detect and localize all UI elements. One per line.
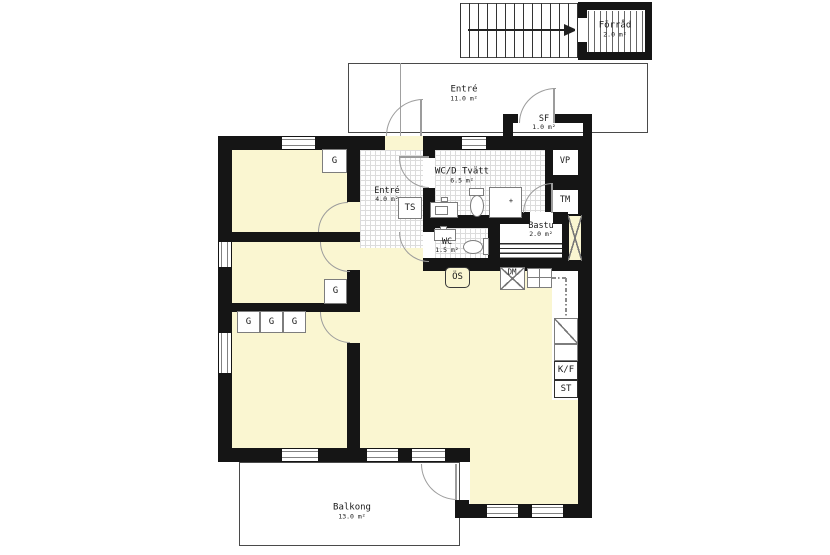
bedroom3-west-window [219,333,231,373]
label-outer-entre-text: 11.0 m² [450,96,477,104]
wardrobe-g-bedroom1: G [322,149,347,173]
label-shower-tap-text: + [509,197,513,205]
wcd-door-leaf [399,156,429,158]
label-inner-entre-text: 4.0 m² [374,196,400,204]
shaft-diag-2 [568,215,582,261]
room-fill-living-jut [470,448,578,504]
fridge-freezer-kf: K/F [554,361,578,380]
label-balkong: Balkong13.0 m² [333,503,371,522]
label-tm: TM [560,195,570,205]
wall-left [218,136,232,462]
label-wc-text: 1.5 m² [435,247,458,255]
counter-edge-top [552,277,566,279]
label-vp: VP [560,156,570,166]
wall-bed1-mid [232,232,353,242]
front-door-leaf [420,100,422,136]
cleaning-closet-st: ST [554,380,578,398]
shower-cabin [489,187,522,218]
floor-plan-canvas: GGGGGTSK/FSTÖSFörråd2.0 m²Entré11.0 m²SF… [0,0,830,555]
label-vp-text: VP [560,156,570,166]
fireplace-os: ÖS [445,267,470,288]
wardrobe-g-middle: G [324,279,347,304]
label-shower-tap: + [509,197,513,205]
stove-diag [554,318,578,344]
wall-bottom-right [455,504,592,518]
jut-south-window-1 [487,505,518,517]
label-bastu: Bastu2.0 m² [528,221,554,239]
living-south-window-2 [412,449,445,461]
jut-south-window-2 [532,505,563,517]
wcd-window [462,137,486,149]
label-forrad: Förråd2.0 m² [599,21,632,40]
label-outer-entre: Entré11.0 m² [450,85,477,104]
kitchen-sink-divider-h [527,277,552,278]
forrad-door-gap [578,18,587,42]
counter-edge-side [565,278,567,318]
wcd-sink-inner [435,206,448,215]
room-fill-living-south [552,400,578,448]
stair-direction-arrow [564,24,576,36]
sauna-bench [500,243,562,258]
label-tm-text: TM [560,195,570,205]
label-sf: SF1.0 m² [532,114,555,132]
living-south-window-1 [367,449,398,461]
balcony-door-leaf [455,464,457,500]
wall-wc-bastu [488,224,500,262]
wall-sf-right [583,114,592,136]
wc-sink-tap [440,226,447,230]
wcd-toilet-bowl [470,195,484,217]
stair-direction-line [468,29,566,31]
wc-toilet-tank [483,238,489,255]
room-fill-living-main [423,271,552,448]
wcd-sink-tap [441,197,448,202]
wardrobe-g-bed3-1: G [237,311,260,333]
label-wc: WC1.5 m² [435,237,458,255]
wall-spine [347,150,360,448]
bastu-door-leaf [551,183,553,213]
bedroom3-south-window [282,449,318,461]
wall-forrad-top [578,2,652,10]
label-forrad-text: 2.0 m² [599,32,632,40]
label-bastu-text: 2.0 m² [528,231,554,239]
bedroom1-door-gap [347,202,360,232]
wc-toilet-bowl [463,240,483,254]
label-dm: DM [507,268,516,277]
room-fill-living-west [360,248,423,448]
wall-forrad-bottom [578,52,652,60]
middle-room-window [219,242,231,267]
drying-cabinet-ts: TS [398,197,422,219]
front-door-threshold [385,136,423,150]
label-wcd-text: 6.5 m² [435,178,489,186]
wall-right [578,136,592,518]
counter-box [554,344,578,361]
label-wcd: WC/D Tvätt6.5 m² [435,167,489,186]
wardrobe-g-bed3-3: G [283,311,306,333]
label-balkong-text: 13.0 m² [333,514,371,522]
bedroom1-window [282,137,315,149]
label-sf-text: 1.0 m² [532,124,555,132]
label-inner-entre: Entré4.0 m² [374,186,400,204]
label-dm-text: DM [507,268,516,277]
wardrobe-g-bed3-2: G [260,311,283,333]
